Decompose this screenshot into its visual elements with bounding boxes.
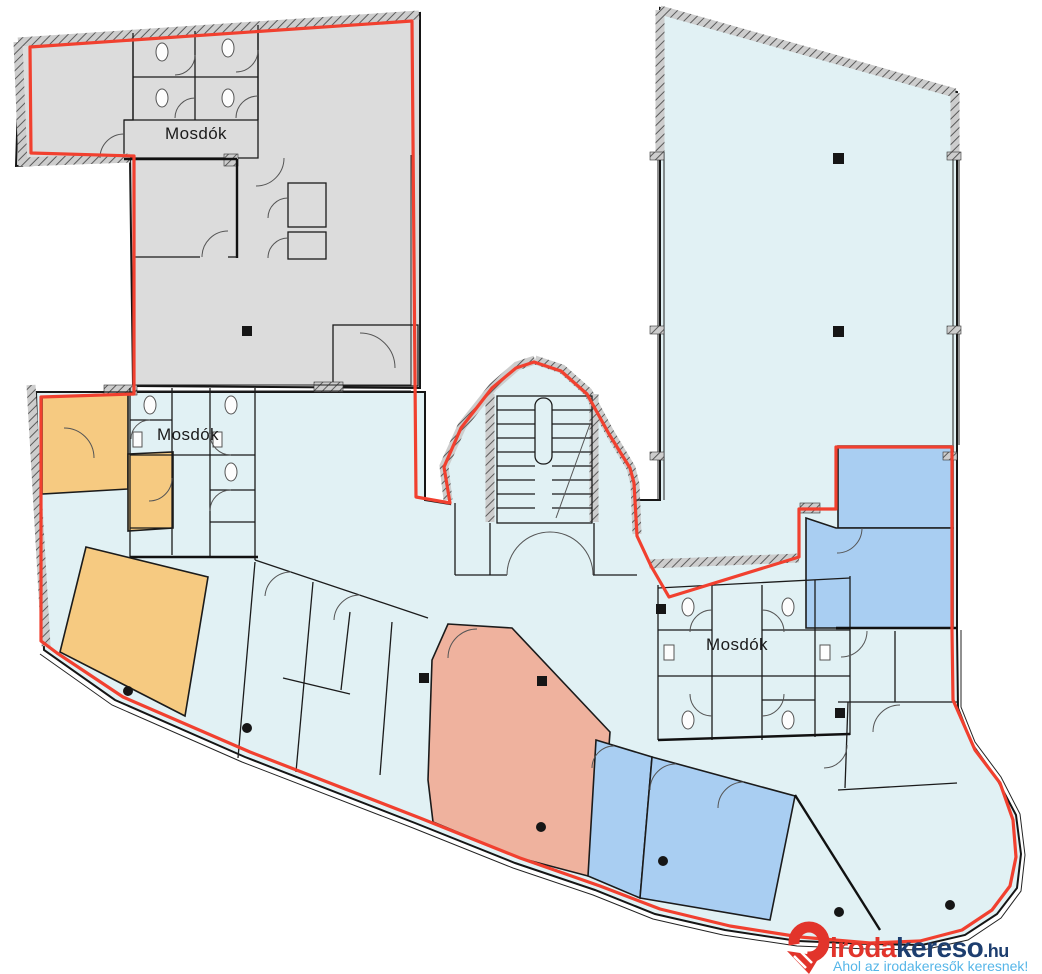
sink-icon xyxy=(820,645,830,660)
floorplan-svg: Mosdók Mosdók Mosdók irodakereso.hu Ahol… xyxy=(0,0,1042,974)
toilet-icon xyxy=(225,463,237,481)
zone-orange-2 xyxy=(128,452,173,531)
site-logo: irodakereso.hu Ahol az irodakeresők kere… xyxy=(787,927,1028,974)
toilet-icon xyxy=(682,711,694,729)
zone-orange-3 xyxy=(60,547,208,716)
toilet-icon xyxy=(782,711,794,729)
restroom-label-left: Mosdók xyxy=(157,425,219,444)
toilet-icon xyxy=(222,89,234,107)
sink-icon xyxy=(133,432,142,447)
toilet-icon xyxy=(144,396,156,414)
toilet-icon xyxy=(682,598,694,616)
restroom-label-top: Mosdók xyxy=(165,124,227,143)
floorplan-page: Mosdók Mosdók Mosdók irodakereso.hu Ahol… xyxy=(0,0,1042,974)
upper-left-block xyxy=(16,13,420,388)
zone-blue-right-lower xyxy=(806,518,953,628)
toilet-icon xyxy=(782,598,794,616)
toilet-icon xyxy=(156,43,168,61)
logo-tagline: Ahol az irodakeresők keresnek! xyxy=(833,958,1028,974)
toilet-icon xyxy=(222,39,234,57)
restroom-label-right: Mosdók xyxy=(706,635,768,654)
sink-icon xyxy=(664,645,674,660)
toilet-icon xyxy=(156,89,168,107)
zone-blue-right-upper xyxy=(838,446,953,528)
zone-orange-1 xyxy=(42,393,128,494)
toilet-icon xyxy=(225,396,237,414)
